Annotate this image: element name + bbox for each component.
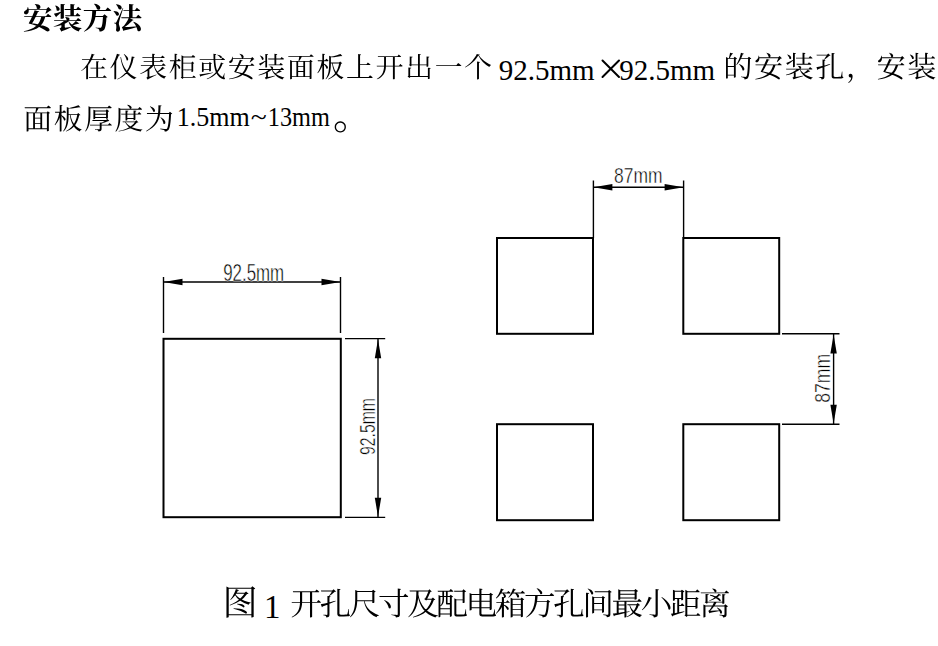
- svg-text:92.5mm: 92.5mm: [499, 54, 595, 86]
- svg-text:1: 1: [264, 589, 281, 625]
- svg-text:~: ~: [251, 101, 267, 132]
- svg-text:87mm: 87mm: [614, 163, 663, 188]
- svg-text:13mm: 13mm: [268, 101, 330, 132]
- svg-text:92.5mm: 92.5mm: [223, 260, 284, 286]
- svg-text:92.5mm: 92.5mm: [619, 54, 715, 86]
- svg-text:1.5mm: 1.5mm: [177, 101, 250, 132]
- svg-text:87mm: 87mm: [810, 354, 835, 403]
- svg-text:92.5mm: 92.5mm: [355, 398, 380, 455]
